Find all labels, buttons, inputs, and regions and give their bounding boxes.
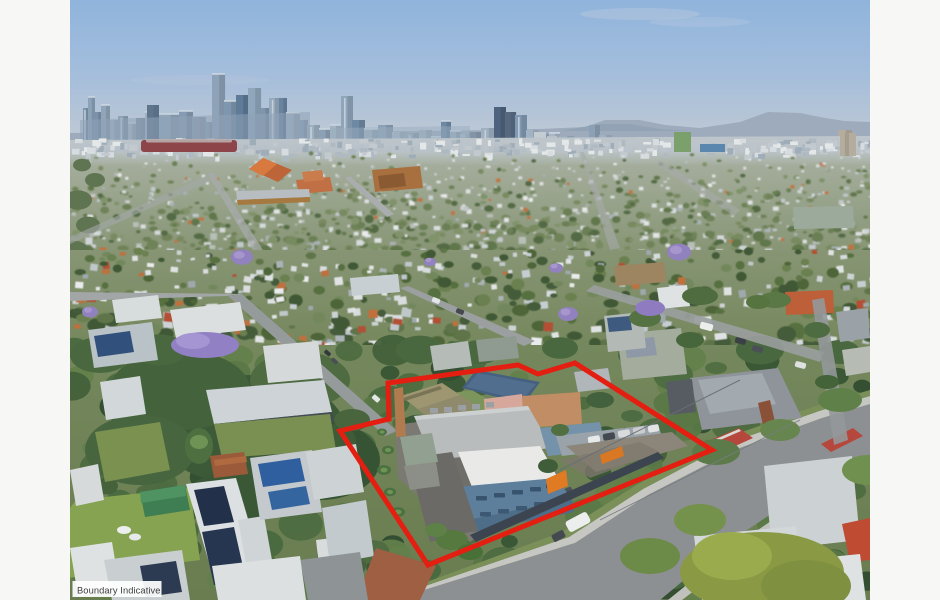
- svg-text:Boundary Indicative: Boundary Indicative: [77, 586, 161, 596]
